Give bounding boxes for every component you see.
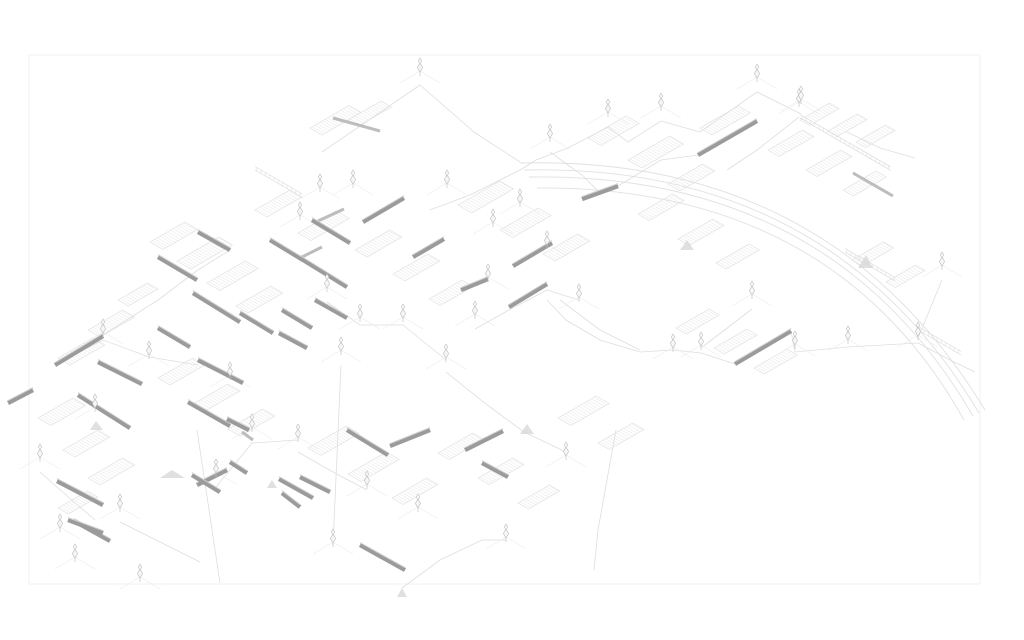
platform-hatch-line <box>701 165 713 172</box>
platform-hatch-line <box>208 395 220 402</box>
guy-line <box>280 215 300 227</box>
platform-outline <box>150 222 198 250</box>
beam-top-edge <box>390 428 430 444</box>
platform <box>118 283 158 306</box>
platform-hatch-line <box>710 122 722 129</box>
platform-hatch-line <box>443 450 454 457</box>
platform-hatch-line <box>326 438 339 446</box>
platform-hatch-line <box>718 118 730 125</box>
platform-hatch-line <box>904 272 914 278</box>
platform-hatch-line <box>823 107 833 113</box>
beam <box>270 238 303 260</box>
platform-hatch-line <box>449 287 460 294</box>
beam-body <box>68 520 103 533</box>
platform-hatch-line <box>341 110 353 117</box>
link-line <box>594 430 616 570</box>
platform-hatch-line <box>733 109 745 116</box>
tower-upper-lens <box>38 444 42 450</box>
platform-hatch-line <box>850 186 860 192</box>
guy-line <box>313 542 333 554</box>
platform-hatch-line <box>772 358 782 364</box>
beam <box>198 358 243 383</box>
platform-hatch-line <box>820 108 830 114</box>
platform-hatch-line <box>230 270 243 278</box>
link-line <box>661 92 757 132</box>
drawing-frame <box>29 55 980 584</box>
platform-hatch-line <box>378 237 390 244</box>
tower <box>297 202 302 220</box>
beam-body <box>98 362 142 384</box>
platform-hatch-line <box>403 268 415 275</box>
guy-line <box>922 265 942 277</box>
tower-upper-lens <box>147 341 151 347</box>
guy-line <box>252 427 272 439</box>
platform-hatch-line <box>376 104 386 110</box>
tower-upper-lens <box>548 124 552 130</box>
platform-outline <box>355 230 402 257</box>
platform <box>392 478 438 505</box>
platform-hatch-line <box>769 359 779 365</box>
platform-hatch-line <box>308 227 321 235</box>
platform-hatch-line <box>701 226 712 233</box>
guy-line <box>641 106 661 118</box>
beam-top-edge <box>158 326 190 345</box>
platform-hatch-line <box>683 324 693 330</box>
tower <box>295 424 300 442</box>
platform-outline <box>500 208 551 238</box>
platform-hatch-line <box>439 293 450 300</box>
platform-hatch-line <box>739 250 749 256</box>
platform-hatch-line <box>264 290 276 297</box>
platform-hatch-line <box>262 206 274 213</box>
platform-hatch-line <box>856 115 866 121</box>
tower <box>605 99 610 117</box>
platform-hatch-line <box>506 462 517 469</box>
beam-light <box>318 209 344 221</box>
tower-upper-lens <box>318 174 322 180</box>
platform-hatch-line <box>791 137 802 144</box>
guy-line <box>455 314 475 326</box>
guy-line <box>129 354 149 366</box>
platform-hatch-line <box>78 441 90 448</box>
platform-hatch-line <box>183 223 196 231</box>
platform-hatch-line <box>405 491 416 498</box>
platform-outline <box>88 458 135 485</box>
platform-hatch-line <box>782 352 792 358</box>
platform-hatch-line <box>116 314 128 321</box>
platform-hatch-line <box>317 124 329 131</box>
platform-hatch-line <box>398 271 410 278</box>
platform-outline <box>63 430 110 457</box>
beam <box>98 360 142 384</box>
platform-hatch-line <box>666 198 677 205</box>
platform-hatch-line <box>846 121 856 127</box>
platform-hatch-line <box>76 443 88 450</box>
platform-hatch-line <box>200 400 212 407</box>
tower <box>400 304 405 322</box>
tower <box>417 58 422 76</box>
platform-hatch-line <box>544 488 554 494</box>
platform-hatch-line <box>315 125 327 132</box>
platform-hatch-line <box>688 172 700 179</box>
platform-hatch-line <box>157 238 170 246</box>
platform-hatch-line <box>696 168 708 175</box>
platform-hatch-line <box>699 315 709 321</box>
platform-hatch-line <box>283 194 295 201</box>
platform-hatch-line <box>558 245 570 252</box>
platform-hatch-line <box>626 427 637 434</box>
platform-outline <box>716 244 759 269</box>
platform-hatch-line <box>513 223 526 231</box>
tower <box>670 334 675 352</box>
platform-hatch-line <box>168 372 180 379</box>
tower-upper-lens <box>577 284 581 290</box>
platform-hatch-line <box>896 276 906 282</box>
platform-hatch-line <box>213 392 225 399</box>
platform-hatch-line <box>742 248 752 254</box>
beam-top-edge <box>315 298 347 316</box>
platform-hatch-line <box>576 408 589 416</box>
guy-line <box>40 457 60 469</box>
platform <box>768 130 814 157</box>
tower-upper-lens <box>940 252 944 258</box>
beam-body <box>360 545 405 570</box>
tower <box>364 471 369 489</box>
platform-hatch-line <box>133 291 143 297</box>
platform-hatch-line <box>483 475 494 482</box>
platform-hatch-line <box>826 105 836 111</box>
platform-hatch-line <box>624 428 635 435</box>
platform-hatch-line <box>160 236 173 244</box>
platform-hatch-line <box>254 296 266 303</box>
link-line <box>298 452 367 490</box>
platform-hatch-line <box>114 463 126 470</box>
platform-outline <box>177 237 232 269</box>
platform-hatch-line <box>261 410 273 417</box>
platform-outline <box>236 286 283 313</box>
drawing-page <box>0 0 1024 640</box>
platform-hatch-line <box>323 121 335 128</box>
gusset-triangle <box>160 470 185 478</box>
platform-hatch-line <box>328 436 341 444</box>
tower-upper-lens <box>331 529 335 535</box>
platform-outline <box>558 396 609 426</box>
tower <box>443 344 448 362</box>
platform-hatch-line <box>51 411 64 419</box>
platform-hatch-line <box>181 224 194 232</box>
platform-hatch-line <box>645 210 656 217</box>
platform <box>500 208 551 238</box>
ladder-rail <box>918 330 961 355</box>
beam-top-edge <box>98 360 142 382</box>
platform-hatch-line <box>884 126 894 132</box>
tower <box>317 174 322 192</box>
platform-hatch-line <box>305 229 318 237</box>
beam-body <box>390 430 430 446</box>
platform-hatch-line <box>839 151 850 158</box>
beam-top-edge <box>55 334 103 363</box>
platform-hatch-line <box>721 260 731 266</box>
platform-outline <box>852 242 894 266</box>
platform-hatch-line <box>163 235 176 243</box>
link-line <box>608 121 661 142</box>
beam-top-edge <box>193 291 240 320</box>
platform-hatch-line <box>58 406 71 414</box>
beam-top-edge <box>347 428 388 453</box>
platform-hatch-line <box>91 434 103 441</box>
platform-hatch-line <box>878 245 888 251</box>
platform <box>638 194 684 221</box>
platform-hatch-line <box>163 375 175 382</box>
platform-hatch-line <box>186 362 198 369</box>
platform-hatch-line <box>275 198 287 205</box>
guy-line <box>446 357 466 369</box>
platform-hatch-line <box>764 362 774 368</box>
platform-hatch-line <box>711 220 722 227</box>
platform-hatch-line <box>358 468 371 476</box>
platform-hatch-line <box>720 116 732 123</box>
platform-hatch-line <box>98 472 110 479</box>
guy-line <box>420 71 440 83</box>
platform-hatch-line <box>909 269 919 275</box>
tower <box>749 281 754 299</box>
guy-line <box>546 455 566 467</box>
platform-hatch-line <box>736 251 746 257</box>
platform-hatch-line <box>368 462 381 470</box>
platform-hatch-line <box>325 119 337 126</box>
platform <box>676 309 719 334</box>
platform-hatch-line <box>673 181 685 188</box>
beam <box>509 282 547 307</box>
platform-hatch-line <box>518 220 531 228</box>
platform-hatch-line <box>870 250 880 256</box>
platform-hatch-line <box>841 124 851 130</box>
tower-upper-lens <box>518 189 522 195</box>
tower-upper-lens <box>445 170 449 176</box>
guy-line <box>427 183 447 195</box>
platform-hatch-line <box>178 366 190 373</box>
platform-outline <box>207 261 258 291</box>
tower-upper-lens <box>444 344 448 350</box>
platform-hatch-line <box>121 311 133 318</box>
tower-upper-lens <box>755 64 759 70</box>
platform-hatch-line <box>141 287 151 293</box>
platform-hatch-line <box>533 494 543 500</box>
platform <box>806 150 852 177</box>
beam-top-edge <box>198 230 230 248</box>
platform-hatch-line <box>616 122 629 130</box>
platform-hatch-line <box>123 297 133 303</box>
platform <box>429 280 473 306</box>
beam-top-edge <box>78 393 130 426</box>
tower <box>57 514 62 532</box>
link-line <box>327 302 446 360</box>
guy-line <box>40 527 60 539</box>
platform-hatch-line <box>448 447 459 454</box>
guy-line <box>320 187 340 199</box>
platform-outline <box>518 485 560 509</box>
platform-hatch-line <box>661 201 672 208</box>
platform-hatch-line <box>128 294 138 300</box>
platform-hatch-line <box>550 250 562 257</box>
platform-hatch-line <box>707 124 719 131</box>
guy-line <box>140 577 160 589</box>
link-line <box>791 331 918 352</box>
tower <box>939 252 944 270</box>
platform-hatch-line <box>573 409 586 417</box>
platform-hatch-line <box>681 177 693 184</box>
beam-body <box>347 430 388 455</box>
link-line <box>550 152 600 193</box>
platform-hatch-line <box>111 317 123 324</box>
platform <box>348 101 391 126</box>
guy-line <box>103 332 123 344</box>
link-line <box>547 300 673 352</box>
platform-hatch-line <box>225 273 238 281</box>
platform-hatch-line <box>759 365 769 371</box>
platform-hatch-line <box>729 339 739 345</box>
platform-hatch-line <box>176 227 189 235</box>
beam-body <box>300 477 330 492</box>
platform-hatch-line <box>541 490 551 496</box>
platform-hatch-line <box>269 287 281 294</box>
platform-hatch-line <box>851 118 861 124</box>
tower-upper-lens <box>491 209 495 215</box>
platform-hatch-line <box>241 303 253 310</box>
tower-upper-lens <box>365 471 369 477</box>
platform-hatch-line <box>589 400 602 408</box>
ladder-rail <box>800 118 891 171</box>
tower-upper-lens <box>118 494 122 500</box>
platform-hatch-line <box>706 223 717 230</box>
platform-hatch-line <box>678 178 690 185</box>
platform-hatch-line <box>761 364 771 370</box>
guy-line <box>493 222 513 234</box>
beam-top-edge <box>465 429 503 448</box>
platform-hatch-line <box>807 116 817 122</box>
beam-body <box>582 186 618 199</box>
platform-hatch-line <box>656 204 667 211</box>
platform-hatch-line <box>694 169 706 176</box>
platform-hatch-line <box>61 405 74 413</box>
platform-hatch-line <box>869 175 879 181</box>
platform-hatch-line <box>426 255 438 262</box>
platform <box>843 171 886 196</box>
guy-line <box>447 183 467 195</box>
beam-body <box>315 300 347 318</box>
platform-hatch-line <box>76 498 86 504</box>
platform-hatch-line <box>571 411 584 419</box>
platform-hatch-line <box>361 113 371 119</box>
guy-line <box>530 137 550 149</box>
tower <box>517 189 522 207</box>
beam-body <box>279 333 307 348</box>
platform-hatch-line <box>683 236 694 243</box>
platform-hatch-line <box>568 412 581 420</box>
platform-hatch-line <box>813 113 823 119</box>
platform-hatch-line <box>874 132 884 138</box>
platform-hatch-line <box>681 325 691 331</box>
platform-hatch-line <box>538 491 548 497</box>
platform-hatch-line <box>93 475 105 482</box>
platform-hatch-line <box>819 163 830 170</box>
platform-hatch-line <box>262 291 274 298</box>
tower-upper-lens <box>339 337 343 343</box>
platform <box>177 237 232 269</box>
link-line <box>120 522 200 562</box>
platform-hatch-line <box>421 258 433 265</box>
platform-hatch-line <box>445 449 456 456</box>
tower <box>117 494 122 512</box>
platform-hatch-line <box>549 485 559 491</box>
tower <box>324 274 329 292</box>
platform-hatch-line <box>375 238 387 245</box>
tower-upper-lens <box>58 514 62 520</box>
beam-body <box>482 463 508 477</box>
platform-hatch-line <box>780 353 790 359</box>
gussets <box>90 240 873 597</box>
platform-outline <box>458 181 513 213</box>
platform-hatch-line <box>731 110 743 117</box>
platform <box>63 430 110 457</box>
platform-hatch-line <box>614 123 627 131</box>
platform-hatch-line <box>773 147 784 154</box>
platform-hatch-line <box>45 414 58 422</box>
link-line <box>420 85 520 162</box>
gusset-triangle <box>90 421 103 430</box>
tower-upper-lens <box>401 304 405 310</box>
gusset-triangle <box>397 588 407 597</box>
platform-hatch-line <box>371 107 381 113</box>
platform-hatch-line <box>691 319 701 325</box>
platform-hatch-line <box>715 119 727 126</box>
platform-hatch-line <box>689 321 699 327</box>
guy-line <box>588 112 608 124</box>
axonometric-drawing <box>0 0 1024 640</box>
platform-hatch-line <box>824 160 835 167</box>
tower-upper-lens <box>351 170 355 176</box>
platform-hatch-line <box>366 464 379 472</box>
platform-hatch-line <box>781 143 792 150</box>
platform-hatch-line <box>131 293 141 299</box>
tower-upper-lens <box>418 58 422 64</box>
tower-upper-lens <box>846 326 850 332</box>
beam-body <box>735 331 791 364</box>
platform-outline <box>843 171 886 196</box>
beam-top-edge <box>57 479 103 503</box>
guy-line <box>298 437 318 449</box>
guy-line <box>333 542 353 554</box>
platform-hatch-line <box>719 345 729 351</box>
guy-line <box>400 71 420 83</box>
tower-upper-lens <box>564 442 568 448</box>
platform-hatch-line <box>412 486 423 493</box>
guy-line <box>353 183 373 195</box>
platform-hatch-line <box>315 444 328 452</box>
platform-hatch-line <box>106 320 118 327</box>
beam-top-edge <box>363 196 404 220</box>
platform <box>393 254 440 281</box>
platform-hatch-line <box>619 120 632 128</box>
platform-hatch-line <box>891 279 901 285</box>
guy-line <box>347 484 367 496</box>
link-line <box>430 170 520 210</box>
platform-hatch-line <box>876 130 886 136</box>
platform-outline <box>58 491 98 514</box>
beam-body <box>270 240 303 260</box>
link-line <box>918 343 975 372</box>
platform <box>38 398 86 426</box>
